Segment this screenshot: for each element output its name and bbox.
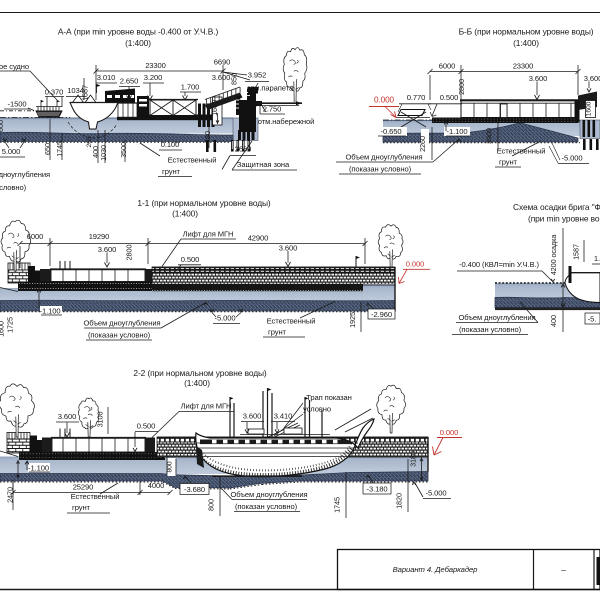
svg-text:Вариант 4. Дебаркадер: Вариант 4. Дебаркадер (393, 565, 479, 574)
svg-text:ое судно: ое судно (0, 62, 29, 71)
svg-text:265: 265 (86, 136, 93, 147)
svg-text:3.200: 3.200 (144, 73, 163, 82)
svg-text:3100: 3100 (96, 412, 105, 428)
svg-text:6000: 6000 (27, 232, 44, 241)
svg-text:600: 600 (0, 120, 5, 132)
svg-text:19290: 19290 (89, 232, 110, 241)
svg-text:(показан условно): (показан условно) (0, 183, 27, 192)
svg-text:780: 780 (203, 131, 212, 143)
svg-text:-0.400 (КВЛ=min У.Ч.В.): -0.400 (КВЛ=min У.Ч.В.) (459, 260, 539, 269)
svg-text:Лифт для МГН: Лифт для МГН (181, 402, 232, 411)
svg-text:400: 400 (549, 315, 558, 327)
svg-text:(показан условно): (показан условно) (235, 502, 298, 511)
svg-text:0.370: 0.370 (45, 88, 64, 97)
svg-text:25290: 25290 (73, 483, 94, 492)
svg-text:(показан условно): (показан условно) (88, 331, 151, 340)
svg-text:Объем дноуглубления: Объем дноуглубления (345, 153, 422, 162)
svg-text:0.000: 0.000 (374, 96, 395, 105)
svg-text:(показан условно): (показан условно) (459, 325, 522, 334)
svg-text:3.600: 3.600 (529, 74, 548, 83)
svg-text:1030: 1030 (99, 145, 108, 161)
svg-text:1.: 1. (594, 254, 600, 263)
svg-text:2800: 2800 (457, 79, 466, 95)
svg-text:(1:400): (1:400) (184, 378, 210, 388)
svg-text:800: 800 (167, 461, 174, 472)
svg-text:отм.набережной: отм.набережной (258, 117, 314, 126)
svg-text:3.600: 3.600 (243, 412, 262, 421)
svg-text:Объем дноуглубления: Объем дноуглубления (0, 170, 50, 179)
svg-text:грунт: грунт (72, 503, 90, 512)
svg-text:3.600: 3.600 (212, 73, 231, 82)
svg-text:3.410: 3.410 (274, 412, 293, 421)
svg-text:2800: 2800 (125, 245, 134, 261)
svg-text:6690: 6690 (214, 58, 231, 67)
svg-text:650: 650 (43, 143, 52, 155)
svg-text:Б-Б (при нормальном уровне вод: Б-Б (при нормальном уровне воды) (459, 27, 594, 37)
svg-text:грунт: грунт (499, 158, 517, 167)
svg-text:1820: 1820 (395, 493, 404, 509)
svg-text:4200 осадка: 4200 осадка (549, 234, 558, 276)
svg-text:(1:400): (1:400) (172, 209, 198, 219)
svg-text:0.000: 0.000 (440, 428, 459, 437)
svg-text:0.000: 0.000 (406, 260, 425, 269)
svg-text:Объем дноуглубления: Объем дноуглубления (83, 319, 160, 328)
svg-text:-1.100: -1.100 (447, 127, 468, 136)
svg-text:1587: 1587 (572, 244, 581, 260)
svg-text:Объем дноуглубления: Объем дноуглубления (230, 490, 307, 499)
svg-text:3500: 3500 (119, 142, 128, 158)
svg-text:-5.000: -5.000 (562, 154, 583, 163)
svg-text:3900: 3900 (485, 128, 494, 144)
svg-text:1745: 1745 (55, 141, 64, 157)
svg-text:грунт: грунт (162, 167, 180, 176)
svg-text:2260: 2260 (418, 136, 427, 152)
svg-text:-1.100: -1.100 (40, 307, 61, 316)
svg-text:-3.680: -3.680 (184, 485, 205, 494)
svg-text:2.750: 2.750 (263, 105, 282, 114)
svg-text:2.650: 2.650 (120, 77, 139, 86)
svg-text:800: 800 (207, 499, 216, 511)
svg-text:0.100: 0.100 (161, 140, 180, 149)
svg-text:Схема осадки брига "Ф: Схема осадки брига "Ф (513, 202, 600, 212)
svg-text:3.600: 3.600 (584, 74, 600, 83)
svg-text:2-2 (при нормальном уровне вод: 2-2 (при нормальном уровне воды) (133, 368, 266, 378)
svg-text:условно: условно (303, 405, 331, 414)
svg-text:850: 850 (230, 73, 239, 85)
svg-text:отм.парапета: отм.парапета (247, 84, 294, 93)
svg-text:6000: 6000 (439, 62, 456, 71)
svg-text:(при min уровне во: (при min уровне во (528, 214, 600, 224)
svg-text:0.500: 0.500 (440, 93, 459, 102)
svg-text:грунт: грунт (268, 328, 286, 337)
svg-text:Естественный: Естественный (168, 156, 217, 165)
svg-text:4000: 4000 (148, 481, 165, 490)
svg-text:1587: 1587 (81, 85, 90, 101)
svg-text:-5.: -5. (588, 315, 597, 324)
svg-text:3.010: 3.010 (97, 73, 116, 82)
svg-text:23300: 23300 (145, 61, 166, 70)
svg-text:-0.650: -0.650 (381, 127, 402, 136)
svg-text:-1500: -1500 (8, 100, 27, 109)
svg-text:1-1 (при нормальном уровне вод: 1-1 (при нормальном уровне воды) (137, 198, 270, 208)
svg-text:-5.000: -5.000 (426, 489, 447, 498)
svg-text:3.600: 3.600 (58, 412, 77, 421)
svg-text:Объем дноуглубления: Объем дноуглубления (458, 313, 535, 322)
svg-text:1600: 1600 (586, 101, 593, 116)
svg-text:-3.180: -3.180 (367, 485, 388, 494)
svg-text:5.000: 5.000 (2, 147, 21, 156)
svg-text:Естественный: Естественный (71, 492, 120, 501)
svg-text:–: – (561, 565, 566, 575)
svg-text:-1.100: -1.100 (28, 464, 49, 473)
svg-text:Защитная зона: Защитная зона (237, 160, 290, 169)
svg-text:А-А (при min уровне воды -0.40: А-А (при min уровне воды -0.400 от У.Ч.В… (58, 27, 219, 37)
svg-text:Лифт для МГН: Лифт для МГН (183, 230, 234, 239)
svg-text:-5.000: -5.000 (215, 314, 236, 323)
svg-text:23300: 23300 (513, 62, 534, 71)
svg-text:Трап показан: Трап показан (306, 393, 352, 402)
svg-text:1.700: 1.700 (181, 83, 200, 92)
svg-text:0.500: 0.500 (137, 422, 156, 431)
svg-text:(1:400): (1:400) (513, 38, 539, 48)
svg-text:0.500: 0.500 (181, 255, 200, 264)
svg-text:3180: 3180 (409, 451, 418, 467)
svg-text:1925: 1925 (348, 312, 357, 328)
svg-text:(показан условно): (показан условно) (349, 165, 412, 174)
svg-text:1725: 1725 (6, 317, 15, 333)
svg-text:Естественный: Естественный (267, 317, 316, 326)
svg-text:1745: 1745 (333, 497, 342, 513)
svg-text:(1:400): (1:400) (125, 38, 151, 48)
svg-text:3.952: 3.952 (248, 71, 267, 80)
svg-text:0.770: 0.770 (407, 93, 426, 102)
svg-text:42900: 42900 (248, 234, 269, 243)
svg-text:-2.960: -2.960 (371, 310, 392, 319)
